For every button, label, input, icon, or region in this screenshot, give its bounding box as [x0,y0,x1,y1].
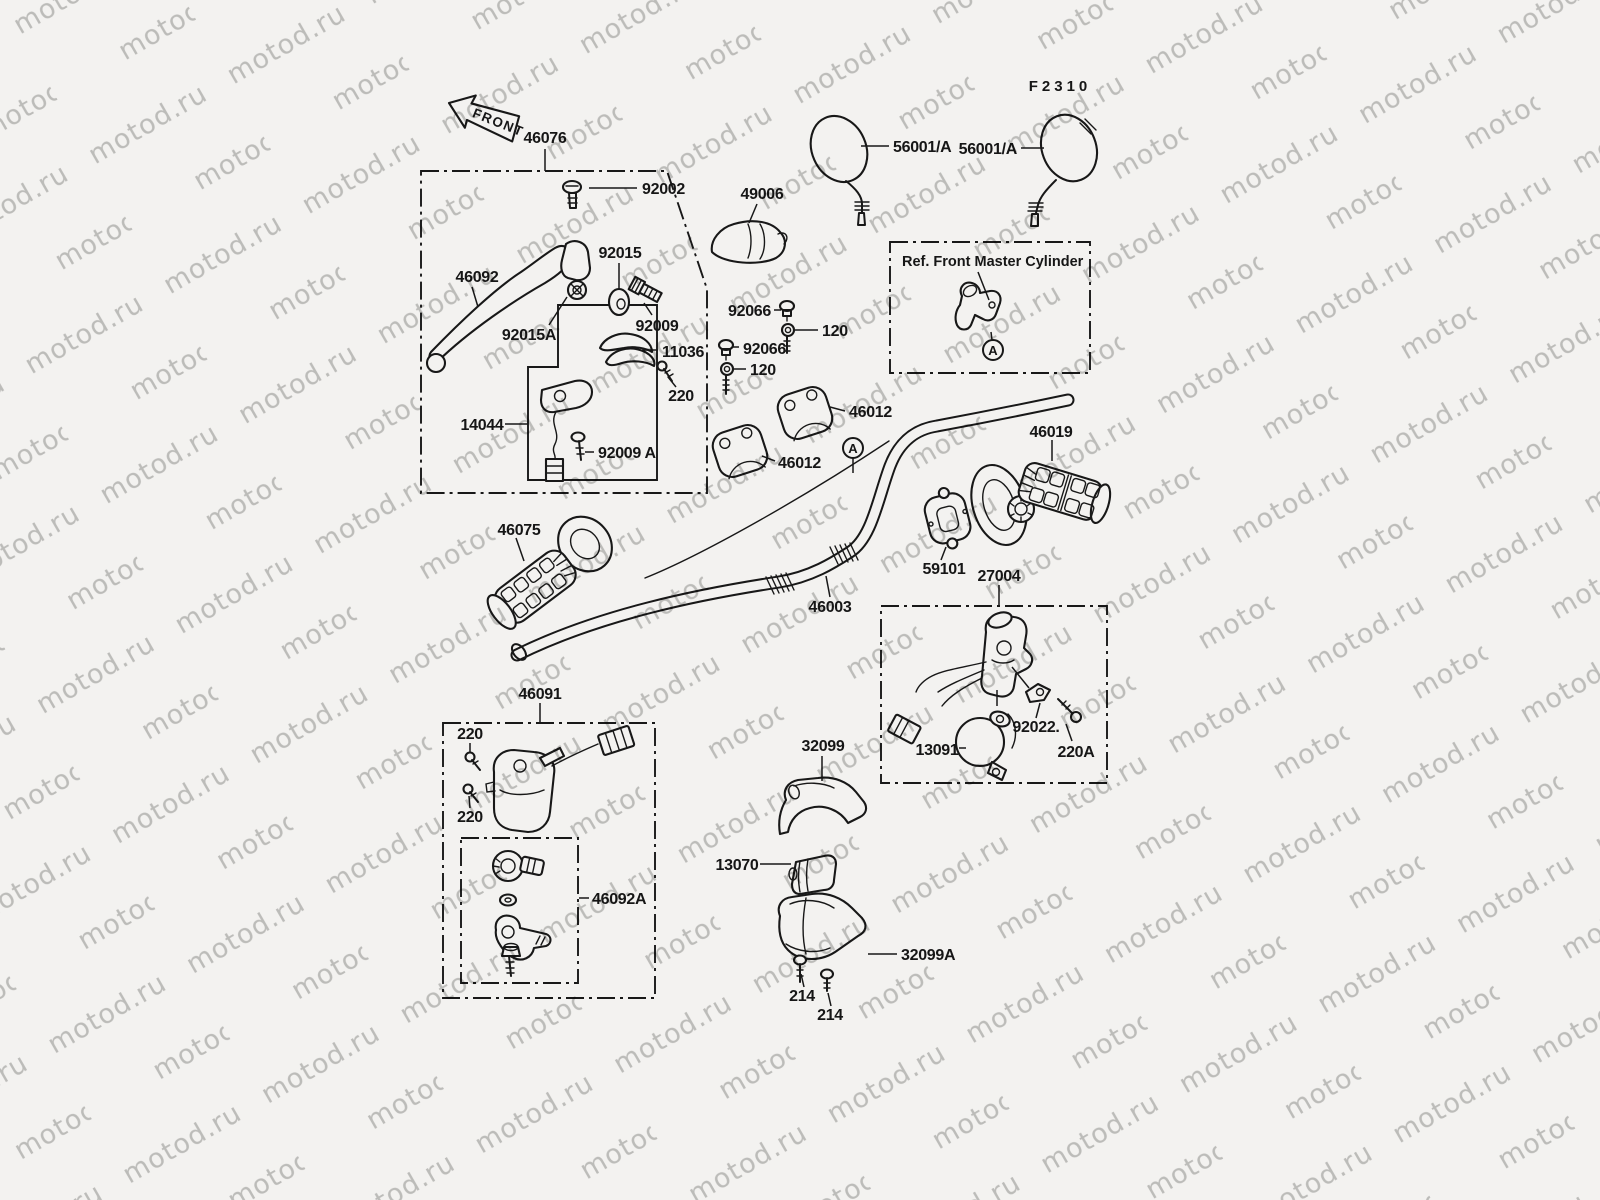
handlebar-parts-diagram: motod.ru motod.ru [0,0,1600,1200]
watermark-overlay [0,0,1600,1200]
parts-diagram-page: motod.ru motod.ru [0,0,1600,1200]
